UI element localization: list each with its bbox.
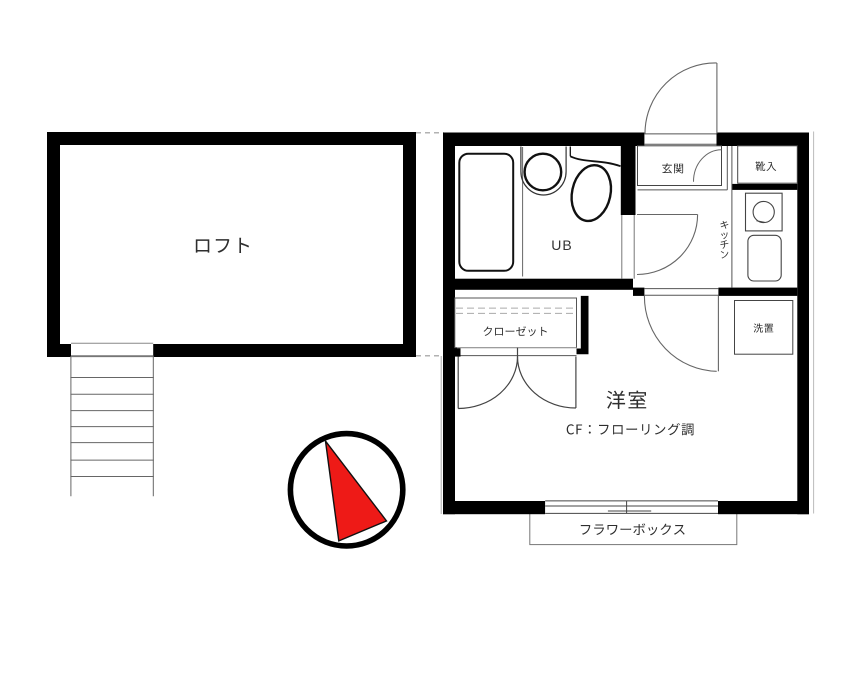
svg-text:UB: UB xyxy=(551,237,572,253)
